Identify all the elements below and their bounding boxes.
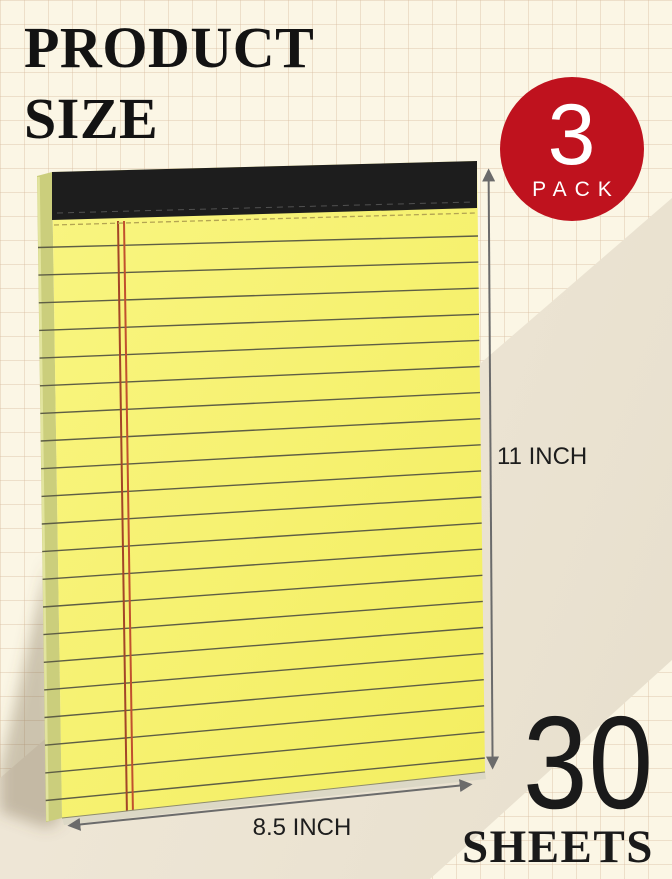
product-size-infographic: PRODUCT SIZE 3 PACK [0, 0, 672, 879]
notepad-page [52, 161, 485, 818]
height-dimension-arrow [489, 171, 493, 767]
sheet-count: 30 [523, 697, 654, 829]
height-dimension-label: 11 INCH [497, 443, 587, 471]
width-dimension-label: 8.5 INCH [230, 814, 374, 842]
sheet-count-caption: SHEETS [462, 824, 654, 871]
